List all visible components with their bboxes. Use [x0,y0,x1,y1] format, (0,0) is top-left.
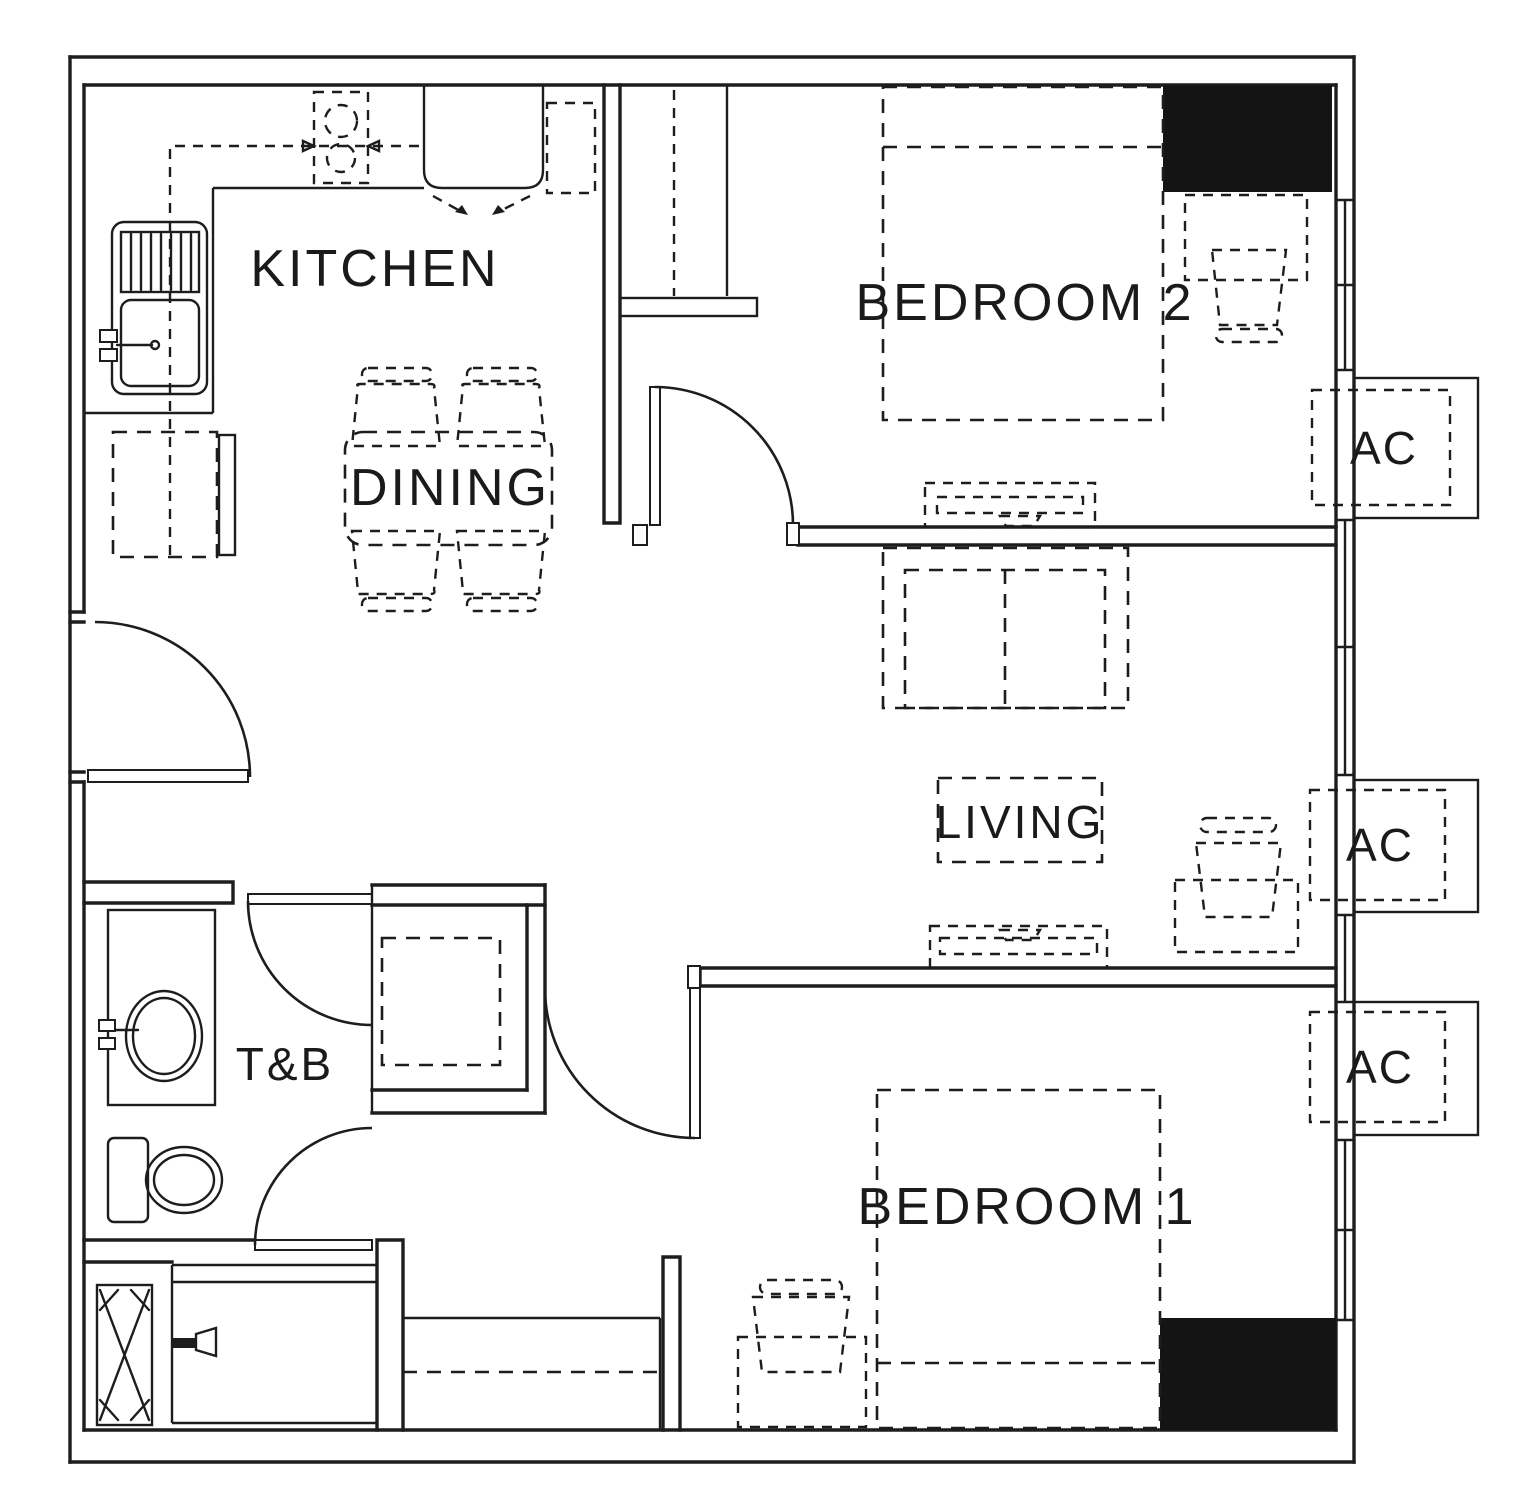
wardrobe-interior [382,938,500,1065]
dining-chair [457,384,545,446]
tnb-door-swing [248,901,372,1025]
closet-shelf [620,298,757,316]
dining-area: DINING [345,368,552,611]
bedroom2-label: BEDROOM 2 [855,274,1194,332]
sofa [883,548,1128,708]
chair-back [362,368,432,381]
bedroom1-area: BEDROOM 1 [738,1090,1197,1428]
bathroom-sink [99,910,215,1105]
entry-door [88,622,250,782]
chair-bedroom1 [738,1280,866,1427]
stove [314,92,368,183]
swing-arrowheads [455,205,505,215]
column-top-right [1163,85,1332,192]
builtin-counter [403,1318,660,1430]
kitchen-counter-block [424,85,543,188]
bed-bedroom2 [883,87,1163,420]
counter-return [219,435,235,555]
tnb-label: T&B [236,1038,334,1090]
ac-label-2: AC [1346,819,1414,871]
tv-console-bedroom2 [925,483,1095,527]
chair-back [467,368,537,381]
bedroom1-door-swing [545,988,695,1138]
bedroom2-door-leaf [650,387,660,525]
armchair-living [1175,818,1298,952]
ac-label-1: AC [1350,422,1418,474]
refrigerator [547,103,595,193]
chair-back [467,598,537,611]
column-bottom-right [1160,1318,1336,1430]
wardrobe-closet [372,885,545,1113]
tv-console-living [930,926,1107,968]
kitchen-label: KITCHEN [250,240,499,298]
faucet-icon [172,1328,216,1356]
desk-bedroom2 [1185,195,1307,280]
appliance-space [113,432,217,557]
laundry-room [172,1265,377,1423]
entry-door-leaf [88,770,248,782]
living-label: LIVING [936,796,1105,848]
bedroom1-door-leaf [690,988,700,1138]
desk-chair-bedroom2 [1212,250,1286,325]
tnb-door-leaf [248,894,372,904]
bedroom2-door-swing [655,387,793,525]
floor-plan: AC AC AC [0,0,1519,1495]
toilet [108,1138,222,1222]
hall-closet [604,85,757,545]
dining-chair [352,384,440,446]
dining-chair [457,531,545,594]
bedroom1-partition [545,966,1336,1138]
swing-marks [433,196,530,212]
wall-stub [663,1257,680,1430]
windows-right-wall [1336,200,1354,1320]
entry-door-swing [95,622,250,777]
dining-label: DINING [350,459,550,517]
shaft-box [97,1285,152,1425]
dining-chair [352,531,440,594]
tnb-lower-door-leaf [255,1240,372,1250]
kitchen-sink [100,222,207,394]
ac-label-3: AC [1346,1041,1414,1093]
chair-back [362,598,432,611]
living-area: LIVING [883,548,1298,968]
service-area [97,1257,680,1430]
bedroom1-label: BEDROOM 1 [857,1178,1196,1236]
bed-bedroom1 [877,1090,1160,1428]
chair-back [1216,329,1282,342]
tnb-lower-door-swing [255,1128,372,1245]
